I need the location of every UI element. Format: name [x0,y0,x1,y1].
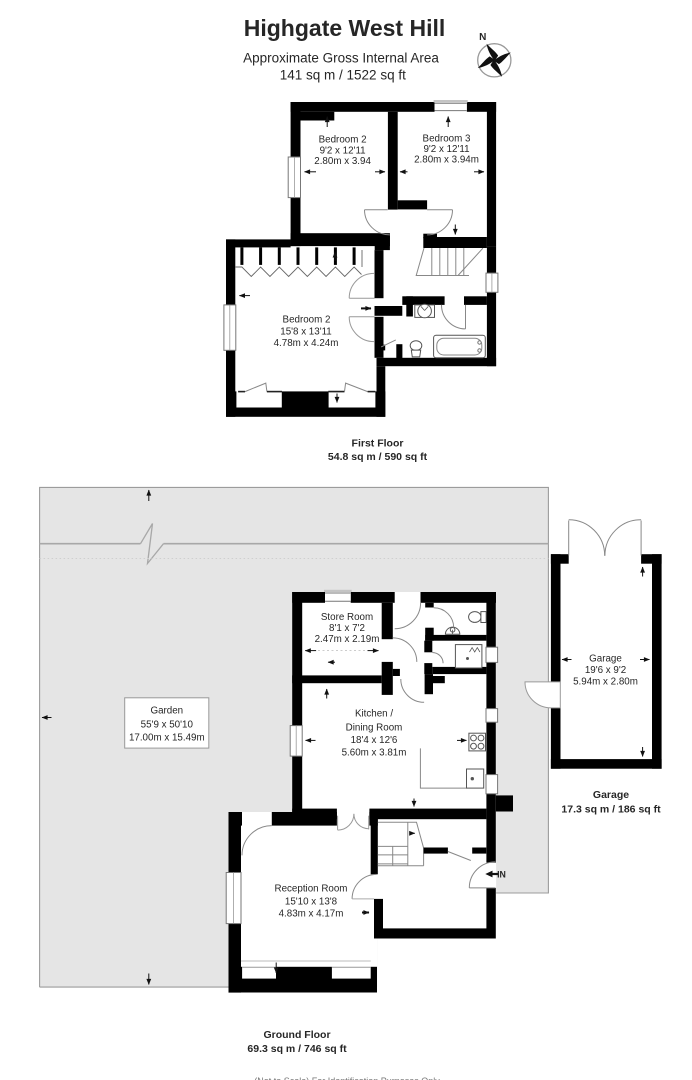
svg-text:4.83m x 4.17m: 4.83m x 4.17m [279,908,344,919]
svg-text:17.3 sq m / 186 sq ft: 17.3 sq m / 186 sq ft [561,804,661,816]
svg-text:Store Room: Store Room [321,612,373,623]
svg-text:5.94m x 2.80m: 5.94m x 2.80m [573,677,638,688]
svg-text:First Floor: First Floor [352,437,404,449]
svg-text:9'2 x 12'11: 9'2 x 12'11 [423,144,469,155]
svg-text:8'1 x 7'2: 8'1 x 7'2 [329,623,365,634]
svg-text:Garage: Garage [589,654,622,665]
svg-text:55'9 x 50'10: 55'9 x 50'10 [141,719,194,730]
svg-text:Kitchen /: Kitchen / [355,709,393,720]
svg-text:Approximate Gross Internal Are: Approximate Gross Internal Area [243,51,439,66]
svg-text:54.8 sq m / 590 sq ft: 54.8 sq m / 590 sq ft [328,451,428,463]
svg-text:Garden: Garden [150,705,183,716]
svg-text:2.80m x 3.94: 2.80m x 3.94 [314,156,371,167]
svg-text:Bedroom 3: Bedroom 3 [423,134,471,145]
svg-text:9'2 x 12'11: 9'2 x 12'11 [320,145,366,156]
svg-text:18'4 x 12'6: 18'4 x 12'6 [351,735,398,746]
svg-text:2.47m x 2.19m: 2.47m x 2.19m [315,634,380,645]
svg-text:2.80m x 3.94m: 2.80m x 3.94m [414,155,479,166]
svg-text:Garage: Garage [593,789,629,801]
svg-text:5.60m x 3.81m: 5.60m x 3.81m [342,747,407,758]
svg-text:Highgate West Hill: Highgate West Hill [244,15,446,41]
svg-text:17.00m x 15.49m: 17.00m x 15.49m [129,732,205,743]
svg-text:Dining Room: Dining Room [346,722,403,733]
svg-text:15'8 x 13'11: 15'8 x 13'11 [280,326,332,337]
svg-text:69.3 sq m / 746 sq ft: 69.3 sq m / 746 sq ft [247,1043,347,1055]
svg-text:4.78m x 4.24m: 4.78m x 4.24m [274,338,339,349]
svg-text:Reception Room: Reception Room [275,884,348,895]
svg-text:15'10 x 13'8: 15'10 x 13'8 [285,896,338,907]
svg-text:Bedroom 2: Bedroom 2 [283,315,331,326]
svg-text:19'6 x 9'2: 19'6 x 9'2 [585,665,626,676]
svg-text:141 sq m / 1522 sq ft: 141 sq m / 1522 sq ft [280,68,406,83]
svg-text:N: N [479,32,486,43]
svg-text:Ground Floor: Ground Floor [263,1029,330,1041]
svg-text:Bedroom 2: Bedroom 2 [319,135,367,146]
svg-text:IN: IN [497,870,506,880]
svg-text:(Not to Scale) For Identificat: (Not to Scale) For Identification Purpos… [254,1076,440,1080]
